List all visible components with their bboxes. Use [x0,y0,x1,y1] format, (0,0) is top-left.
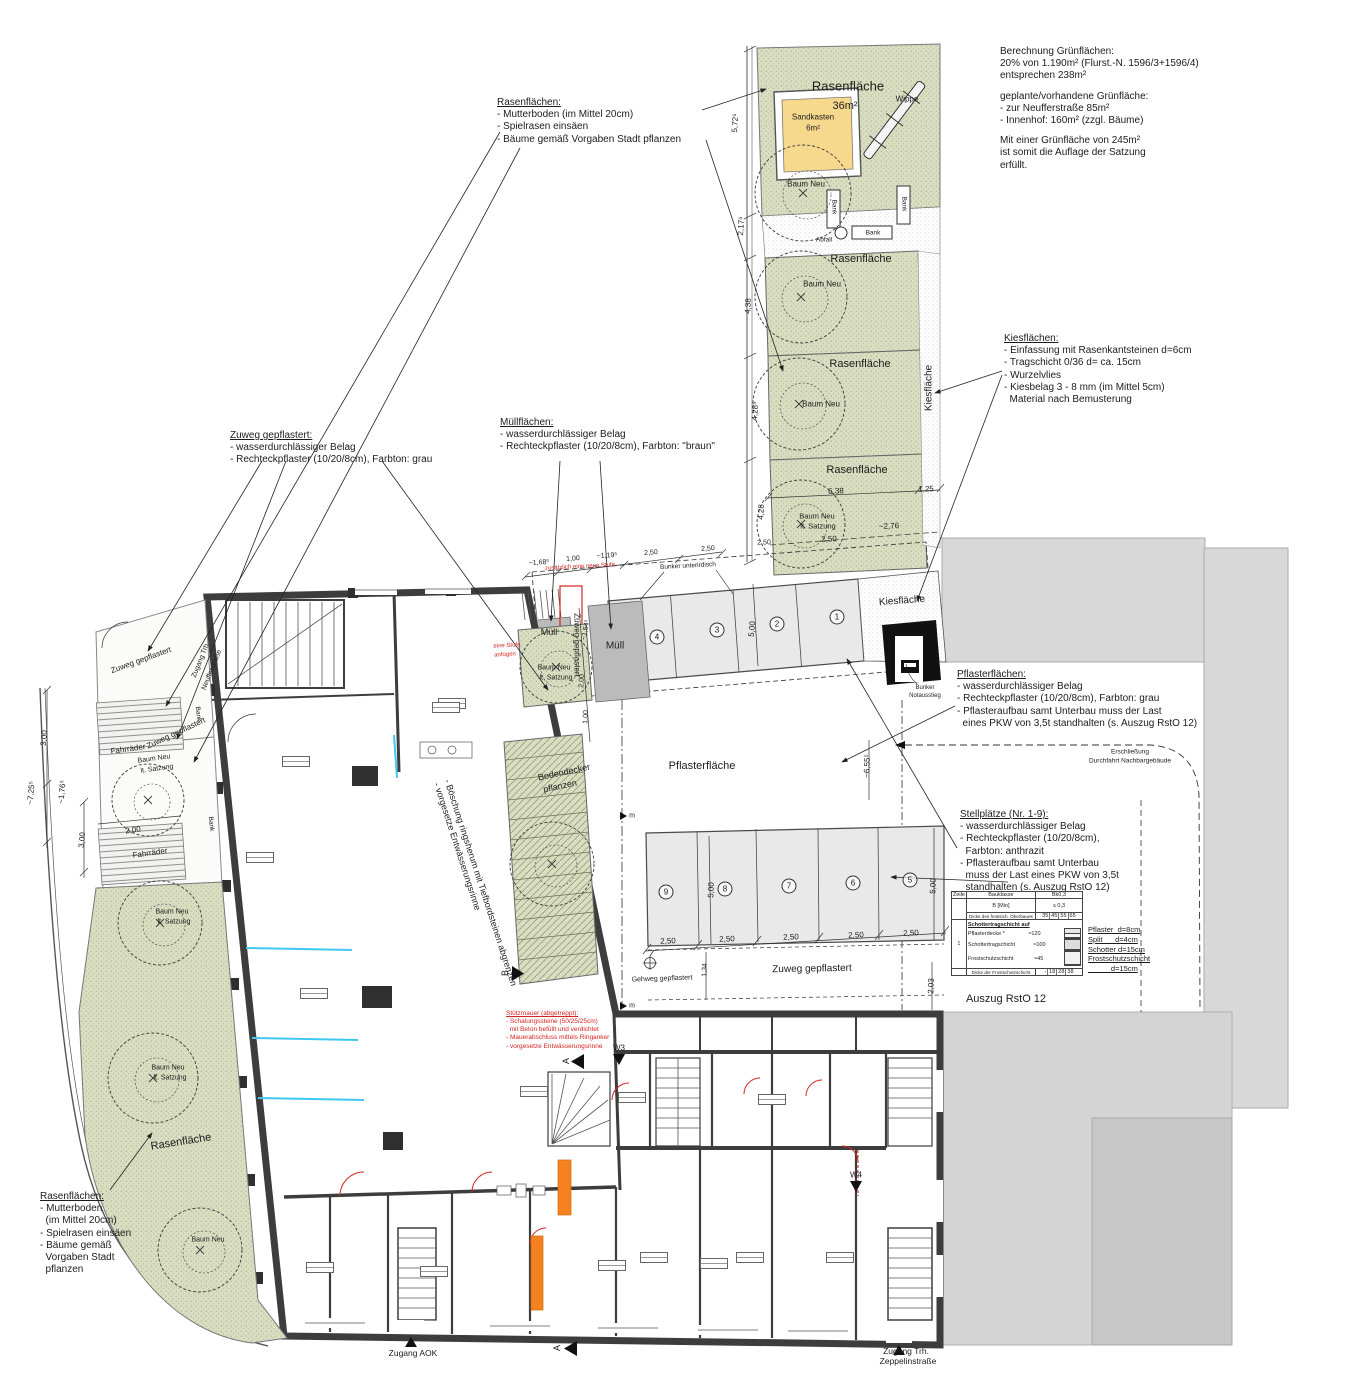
room-label-stamp [736,1252,764,1263]
annotation-line: eines PKW von 3,5t standhalten (s. Auszu… [957,718,1197,730]
plan-label: 1,00 [566,555,580,563]
plan-label: Bunker [915,685,934,691]
plan-label: B [500,970,510,976]
annotation-stuetzmauer: Stützmauer (abgetreppt):- Schalungsstein… [506,1010,609,1051]
rsto-oberbau-vals: 35455565 [1035,913,1082,920]
plan-label: Rasenfläche [829,358,890,370]
rsto-depth1: ≈120 [1028,931,1040,937]
annotation-kiesflaechen: Kiesflächen:- Einfassung mit Rasenkantst… [1004,333,1192,406]
plan-label: Rasenfläche [826,464,887,476]
annotation-line: pflanzen [40,1264,131,1276]
rsto-depth2: ≈100 [1033,942,1045,948]
annotation-title: Müllflächen: [500,417,715,429]
plan-label: Baum Neu [151,1065,184,1072]
plan-label: Notausstieg [909,693,941,699]
plan-label: Müll [541,627,558,637]
plan-label: Zuweg gepflastert [573,613,582,677]
plan-label: ~1,19⁵ [596,552,617,560]
annotation-line: muss der Last eines PKW von 3,5t [960,870,1119,882]
room-label-stamp [758,1094,786,1105]
annotation-line: (im Mittel 20cm) [40,1215,131,1227]
annotation-muellflaechen: Müllflächen:- wasserdurchlässiger Belag-… [500,417,715,454]
plan-label: 3 [710,623,725,638]
plan-label: Bank [901,197,908,212]
plan-label: Wippe [896,95,919,104]
plan-label: Zuweg gepflastert [772,963,852,975]
plan-label: lt. Satzung [800,522,835,531]
annotation-line: - Innenhof: 160m² (zzgl. Bäume) [1000,115,1199,127]
rsto-layer1: Pflasterdecke * [968,931,1005,937]
annotation-line: erfüllt. [1000,160,1199,172]
annotation-line [1000,83,1199,91]
annotation-line: Berechnung Grünflächen: [1000,46,1199,58]
annotation-line: - Wurzelvlies [1004,370,1192,382]
plan-label: anfügen [494,651,516,658]
annotation-pflasterflaechen: Pflasterflächen:- wasserdurchlässiger Be… [957,669,1197,730]
plan-label: 2,50 [821,534,837,544]
plan-label: 6,38 [828,486,844,496]
plan-label: 2,03 [926,978,936,994]
plan-label: 2,50 [719,934,735,944]
plan-label: Zugang AOK [389,1348,438,1358]
annotation-line: mit Beton befüllt und verdichtet [506,1026,609,1034]
plan-label: m [629,1003,635,1010]
annotation-line: ist somit die Auflage der Satzung [1000,147,1199,159]
room-label-stamp [520,1086,548,1097]
annotation-line: - Mutterboden [40,1203,131,1215]
plan-label: 5,00 [747,621,757,637]
plan-label: Baum Neu [803,280,841,289]
plan-label: Bank [194,706,203,721]
plan-label: 5,00 [706,882,716,898]
annotation-line: geplante/vorhandene Grünfläche: [1000,91,1199,103]
room-label-stamp [640,1252,668,1263]
plan-label: 7 [782,879,797,894]
rsto-bauklasse-row: B [Mio] [966,899,1035,913]
plan-label: Baum Neu [191,1237,224,1244]
plan-label: 2,50 [903,928,919,938]
plan-label: 2 [770,617,785,632]
annotation-title: Stellplätze (Nr. 1-9): [960,809,1119,821]
rsto-depth3: ≈45 [1034,956,1043,962]
rsto-col-bk: Bk0,3 [1035,892,1082,899]
rsto-layer3: Frostschutzschicht [968,956,1014,962]
plan-label: lt. Satzung [539,675,572,682]
plan-label: 3,00 [77,832,87,848]
rsto-zeile-num: 1 [952,920,967,969]
plan-label: 36m² [832,100,857,112]
annotation-line: - vorgesetze Entwässerungsrinne [506,1043,609,1051]
plan-label: Kiesfläche [924,365,935,411]
plan-label: Baum Neu [787,180,825,189]
annotation-title: Zuweg gepflastert: [230,430,432,442]
room-label-stamp [246,852,274,863]
annotation-title: Stützmauer (abgetreppt): [506,1010,609,1018]
plan-label: 4 [650,630,665,645]
room-label-stamp [598,1260,626,1271]
plan-label: Zugang Trh. [883,1346,929,1356]
annotation-line: Frostschutzschicht [1088,954,1150,964]
plan-label: 1,25 [918,484,934,494]
rsto-layer2: Schottertragschicht [968,942,1015,948]
annotation-title: Rasenflächen: [40,1191,131,1203]
rsto-col-zeile: Zeile [952,892,967,899]
plan-label: 2,50 [660,936,676,946]
annotation-line: Schotter d=15cm [1088,945,1150,955]
room-label-stamp [300,988,328,999]
annotation-line: - Mauerabschluss mittels Ringanker [506,1034,609,1042]
plan-label: 4,38 [743,298,753,314]
plan-label: Bank [207,816,216,831]
annotation-line: - zur Neufferstraße 85m² [1000,103,1199,115]
plan-label: 2,50 [783,932,799,942]
annotation-line: - Einfassung mit Rasenkantsteinen d=6cm [1004,345,1192,357]
room-label-stamp [306,1262,334,1273]
plan-label: Rasenfläche [830,253,891,265]
plan-label: 2,50 [701,545,715,553]
plan-label: Abfall [816,237,832,244]
plan-label: 3,00 [39,730,49,746]
annotation-line: - wasserdurchlässiger Belag [960,821,1119,833]
plan-label: Müll [606,641,624,652]
plan-label: 1 [830,610,845,625]
rsto-table: Zeile Bauklasse Bk0,3 B [Mio] ≤ 0,3 Dick… [951,891,1083,976]
plan-label: A [552,1345,562,1351]
annotation-line: - Schalungssteine (50/25/25cm) [506,1018,609,1026]
annotation-line: Vorgaben Stadt [40,1252,131,1264]
annotation-line: - Spielrasen einsäen [40,1228,131,1240]
plan-label: 6m² [806,124,820,133]
neighbor-access-arrow [895,741,905,749]
bunker-exit [882,620,941,685]
rsto-frost-label: Dicke der Frostschutzschicht [966,969,1035,976]
plan-label: 2,50 [757,539,771,546]
plan-label: Auszug RstO 12 [966,993,1046,1005]
annotation-line: - Bäume gemäß [40,1240,131,1252]
plan-label: Pflasterfläche [669,760,736,772]
annotation-stellplaetze: Stellplätze (Nr. 1-9):- wasserdurchlässi… [960,809,1119,894]
annotation-line: - Kiesbelag 3 - 8 mm (im Mittel 5cm) [1004,382,1192,394]
annotation-line: - Tragschicht 0/36 d= ca. 15cm [1004,357,1192,369]
plan-label: Rasenfläche [812,79,884,94]
plan-label: 2,50 [848,930,864,940]
annotation-rasenflaechen-top: Rasenflächen:- Mutterboden (im Mittel 20… [497,97,681,146]
annotation-line: Split d=4cm [1088,935,1150,945]
plan-label: 4,28 [756,504,766,520]
annotation-line: Pflaster d=8cm [1088,925,1150,935]
plan-label: Baum Neu [799,512,834,521]
room-label-stamp [420,1266,448,1277]
annotation-title: Kiesflächen: [1004,333,1192,345]
annotation-title: Pflasterflächen: [957,669,1197,681]
room-label-stamp [618,1092,646,1103]
plan-label: m [629,813,635,820]
plan-label: Sandkasten [792,113,834,122]
plan-label: Bank [831,200,838,215]
plan-label: 2,50 [644,549,658,557]
annotation-line: - Rechteckpflaster (10/20/8cm), Farbton:… [230,454,432,466]
plan-label: 9 [659,885,674,900]
annotation-line: - wasserdurchlässiger Belag [500,429,715,441]
annotation-line: - Pflasteraufbau samt Unterbau [960,858,1119,870]
annotation-gruenflaechen-berechnung: Berechnung Grünflächen:20% von 1.190m² (… [1000,46,1199,172]
plan-label: lt. Satzung [157,919,190,926]
annotation-rsto-legend: Pflaster d=8cmSplit d=4cmSchotter d=15cm… [1088,925,1150,974]
rsto-col-bauklasse: Bauklasse [966,892,1035,899]
room-label-stamp [432,702,460,713]
plan-label: 2,00 [578,674,585,688]
annotation-zuweg-gepflastert: Zuweg gepflastert:- wasserdurchlässiger … [230,430,432,467]
plan-label: lt. Satzung [153,1075,186,1082]
annotation-line: - Rechteckpflaster (10/20/8cm), [960,833,1119,845]
rsto-bk-val: ≤ 0,3 [1035,899,1082,913]
annotation-line: - Mutterboden (im Mittel 20cm) [497,109,681,121]
annotation-line: entsprechen 238m² [1000,70,1199,82]
annotation-line: 20% von 1.190m² (Flurst.-N. 1596/3+1596/… [1000,58,1199,70]
annotation-line: - Rechteckpflaster (10/20/8cm), Farbton:… [500,441,715,453]
room-label-stamp [700,1258,728,1269]
plan-label: Baum Neu [537,665,570,672]
annotation-line: - Rechteckpflaster (10/20/8cm), Farbton:… [957,693,1197,705]
room-label-stamp [282,756,310,767]
site-plan-page: Berechnung Grünflächen:20% von 1.190m² (… [0,0,1350,1400]
plan-label: 1,00 [582,710,589,724]
plan-label: 5,72⁵ [730,113,740,132]
plan-label: ~2,76 [879,521,900,531]
room-label-stamp [826,1252,854,1263]
plan-label: W4 [850,1171,862,1180]
rsto-strat-diagram [1064,928,1081,939]
plan-label: Bank [866,230,881,237]
annotation-line: - wasserdurchlässiger Belag [230,442,432,454]
annotation-line: Mit einer Grünfläche von 245m² [1000,135,1199,147]
rsto-oberbau-label: Dicke des frostsich. Oberbaues [966,913,1035,920]
plan-label: 2,17⁵ [736,216,746,235]
annotation-line: d=15cm [1088,964,1150,974]
plan-label: Zeppelinstraße [880,1356,937,1366]
annotation-line: - Pflasteraufbau samt Unterbau muss der … [957,706,1197,718]
annotation-line: - Spielrasen einsäen [497,121,681,133]
plan-label: 1,34 [701,963,708,977]
annotation-rasenflaechen-bottom: Rasenflächen:- Mutterboden (im Mittel 20… [40,1191,131,1276]
plan-label: Baum Neu [802,400,840,409]
annotation-line: Material nach Bemusterung [1004,394,1192,406]
plan-label: Erschließung [1111,749,1149,756]
plan-label: W3 [613,1044,625,1053]
annotation-line [1000,127,1199,135]
plan-label: 6 [846,876,861,891]
annotation-line: Farbton: anthrazit [960,846,1119,858]
rsto-frost-vals: -182838 [1035,969,1082,976]
plan-label: A [561,1058,571,1064]
plan-label: Baum Neu [155,909,188,916]
annotation-title: Rasenflächen: [497,97,681,109]
annotation-line: - wasserdurchlässiger Belag [957,681,1197,693]
plan-label: 4,28⁵ [750,401,760,420]
annotation-line: - Bäume gemäß Vorgaben Stadt pflanzen [497,134,681,146]
plan-label: 8 [718,882,733,897]
plan-label: ~6,55⁵ [862,754,872,778]
plan-label: 5 [903,873,918,888]
plan-label: Durchfahrt Nachbargebäude [1089,758,1171,765]
plan-label: 5,00 [928,878,938,894]
